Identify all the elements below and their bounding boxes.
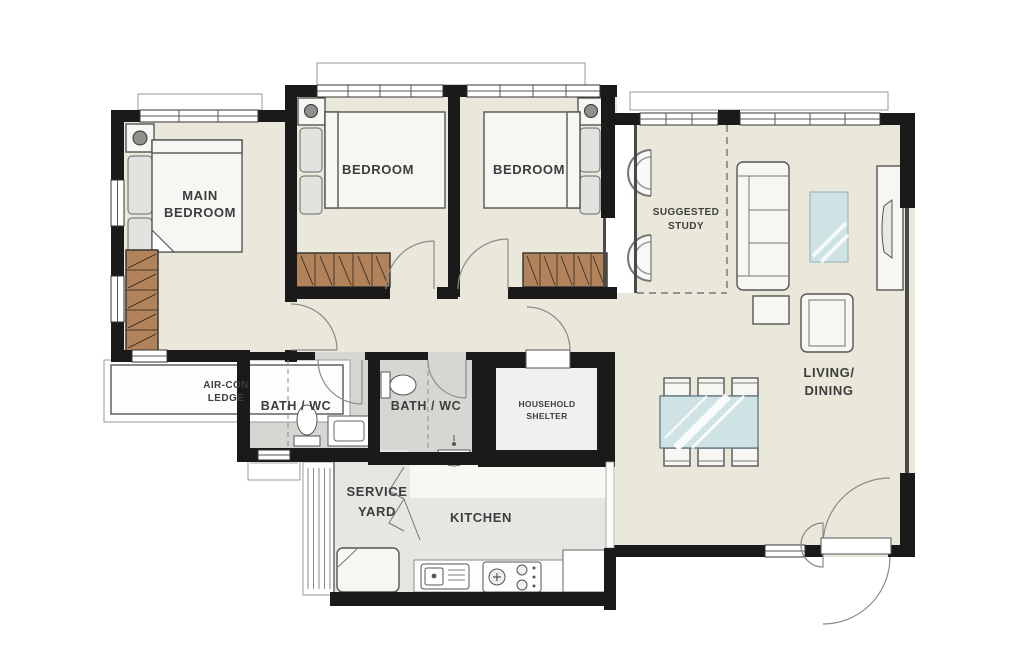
wall-left: [111, 110, 124, 362]
rug-icon: [810, 192, 848, 262]
wall-kitchen-bottom: [330, 592, 616, 606]
service-yard-left-line: [333, 462, 335, 592]
dresser-icon: [300, 128, 322, 172]
window-icon: [467, 85, 600, 97]
window-icon: [140, 110, 258, 122]
wall-entry-right: [888, 545, 915, 557]
shelter-door-slab: [526, 350, 570, 368]
bedside-lamp-icon: [578, 98, 605, 125]
kitchen-entry-strip: [410, 464, 606, 498]
study-label-line2: STUDY: [668, 221, 704, 232]
wall-bath2-right: [472, 352, 478, 465]
window-icon: [740, 113, 880, 125]
wall-entry-left: [805, 545, 823, 557]
aircon-ledge-label-line1: AIR-CON: [203, 380, 249, 391]
side-table-icon: [753, 296, 789, 324]
wall-living-left-thin: [634, 125, 637, 293]
wall-right-top: [900, 113, 915, 208]
floor-plan: MAIN BEDROOM BEDROOM BEDROOM SUGGESTED S…: [0, 0, 1019, 652]
wall-bed3-bottom: [508, 287, 617, 299]
wall-bath2-top: [380, 352, 428, 360]
window-icon: [111, 276, 124, 322]
kitchen-half-wall: [606, 462, 614, 548]
living-dining-label-line2: DINING: [804, 383, 853, 398]
dresser-icon: [128, 156, 152, 214]
armchair-icon: [801, 294, 853, 352]
shelter-label-line1: HOUSEHOLD: [518, 399, 575, 409]
hall-floor: [237, 293, 645, 362]
window-icon: [111, 180, 124, 226]
wall-living-top: [615, 113, 640, 125]
wall-right-thin: [905, 208, 909, 473]
wall-pier: [718, 110, 740, 125]
kitchen-label: KITCHEN: [450, 510, 512, 525]
bath1-label: BATH / WC: [261, 399, 331, 413]
service-yard-label-line1: SERVICE: [346, 484, 407, 499]
study-label-line1: SUGGESTED: [653, 207, 719, 218]
wall-bath1-bath2: [368, 352, 380, 462]
window-ledge-outline: [630, 92, 888, 110]
bath2-label: BATH / WC: [391, 399, 461, 413]
wall-bed3-right-thin: [603, 218, 606, 293]
dresser-icon: [580, 128, 600, 172]
window-icon: [640, 113, 718, 125]
washing-machine-icon: [337, 548, 399, 592]
dresser-icon: [300, 176, 322, 214]
wall-stub: [437, 287, 458, 299]
dining-table-icon: [660, 396, 758, 448]
wardrobe-icon: [523, 253, 607, 287]
wall-bed2-bed3: [448, 97, 460, 297]
wall-bed3-right: [601, 97, 615, 218]
wall-bath2-bottom: [368, 452, 480, 465]
wall-bed2-bottom: [285, 287, 390, 299]
window-icon: [132, 350, 167, 362]
wall-bath1-bottom: [237, 448, 368, 462]
wall-mainbed-bottom: [111, 350, 132, 362]
laundry-rack-icon: [303, 462, 334, 595]
floor-plan-page: MAIN BEDROOM BEDROOM BEDROOM SUGGESTED S…: [0, 0, 1019, 652]
wall-mainbed-bed2: [285, 110, 297, 302]
shelter-interior: [496, 368, 597, 450]
sofa-icon: [737, 162, 789, 290]
main-bedroom-label-line1: MAIN: [182, 188, 218, 203]
entrance-door-slab: [821, 538, 891, 554]
wall-bath1-top: [250, 352, 315, 360]
bedroom2-label: BEDROOM: [342, 162, 414, 177]
bed-icon: [325, 112, 445, 208]
bedside-lamp-icon: [298, 98, 325, 125]
fridge-icon: [563, 550, 606, 592]
wardrobe-icon: [126, 250, 158, 352]
window-icon: [317, 85, 443, 97]
bedside-lamp-icon: [126, 124, 154, 152]
service-yard-label-line2: YARD: [358, 504, 396, 519]
cooktop-icon: [483, 562, 541, 592]
aircon-ledge-label-line2: LEDGE: [208, 393, 244, 404]
main-bedroom-label-line2: BEDROOM: [164, 205, 236, 220]
window-icon: [765, 545, 805, 557]
window-icon: [258, 450, 290, 460]
dresser-icon: [580, 176, 600, 214]
tv-console-icon: [877, 166, 903, 290]
wall-right-bottom: [900, 473, 915, 557]
bed-icon: [484, 112, 580, 208]
window-ledge-outline: [317, 63, 585, 85]
wardrobe-icon: [296, 253, 390, 287]
window-ledge-outline: [138, 94, 262, 110]
wall-bath1-left: [237, 352, 250, 458]
wall-living-bottom: [610, 545, 765, 557]
kitchen-sink-icon: [421, 564, 469, 589]
living-dining-label-line1: LIVING/: [803, 365, 854, 380]
shelter-label-line2: SHELTER: [526, 411, 567, 421]
bedroom3-label: BEDROOM: [493, 162, 565, 177]
